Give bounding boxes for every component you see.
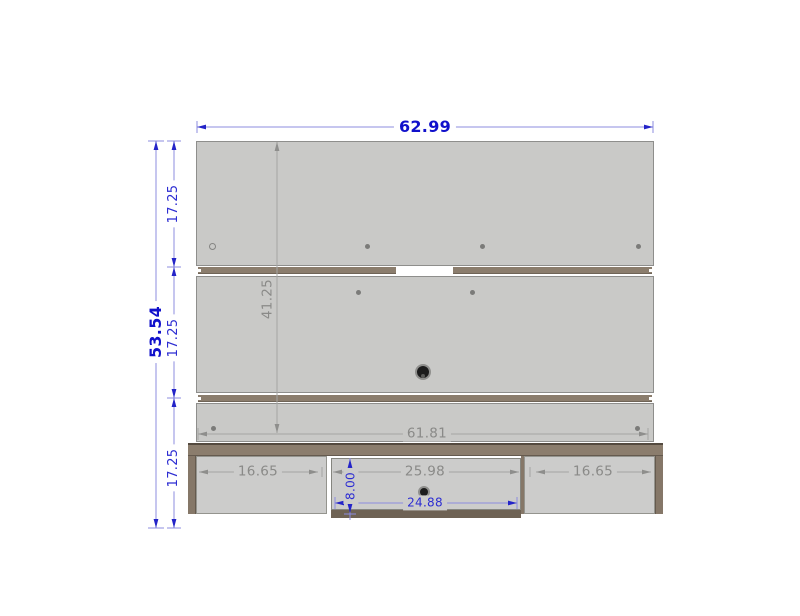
dim-center-compartment-label: 25.98 xyxy=(401,465,449,480)
dim-right-compartment-label: 16.65 xyxy=(569,465,617,480)
dim-overall-height-label: 53.54 xyxy=(147,301,165,363)
dim-middle-section-label: 17.25 xyxy=(166,315,182,362)
dim-left-compartment-label: 16.65 xyxy=(234,465,282,480)
dim-drawer-width-label: 24.88 xyxy=(403,495,447,510)
dim-drawer-height-label: 8.00 xyxy=(343,468,358,504)
dim-panel-height-label: 41.25 xyxy=(261,275,276,323)
dimension-lines xyxy=(0,0,800,616)
dim-top-section-label: 17.25 xyxy=(166,181,182,228)
dim-shelf-width-label: 61.81 xyxy=(403,427,451,442)
technical-drawing: 62.99 53.54 17.25 17.25 17.25 41.25 61.8… xyxy=(0,0,800,616)
dim-overall-width-label: 62.99 xyxy=(394,118,456,136)
dim-bottom-section-label: 17.25 xyxy=(166,445,182,492)
